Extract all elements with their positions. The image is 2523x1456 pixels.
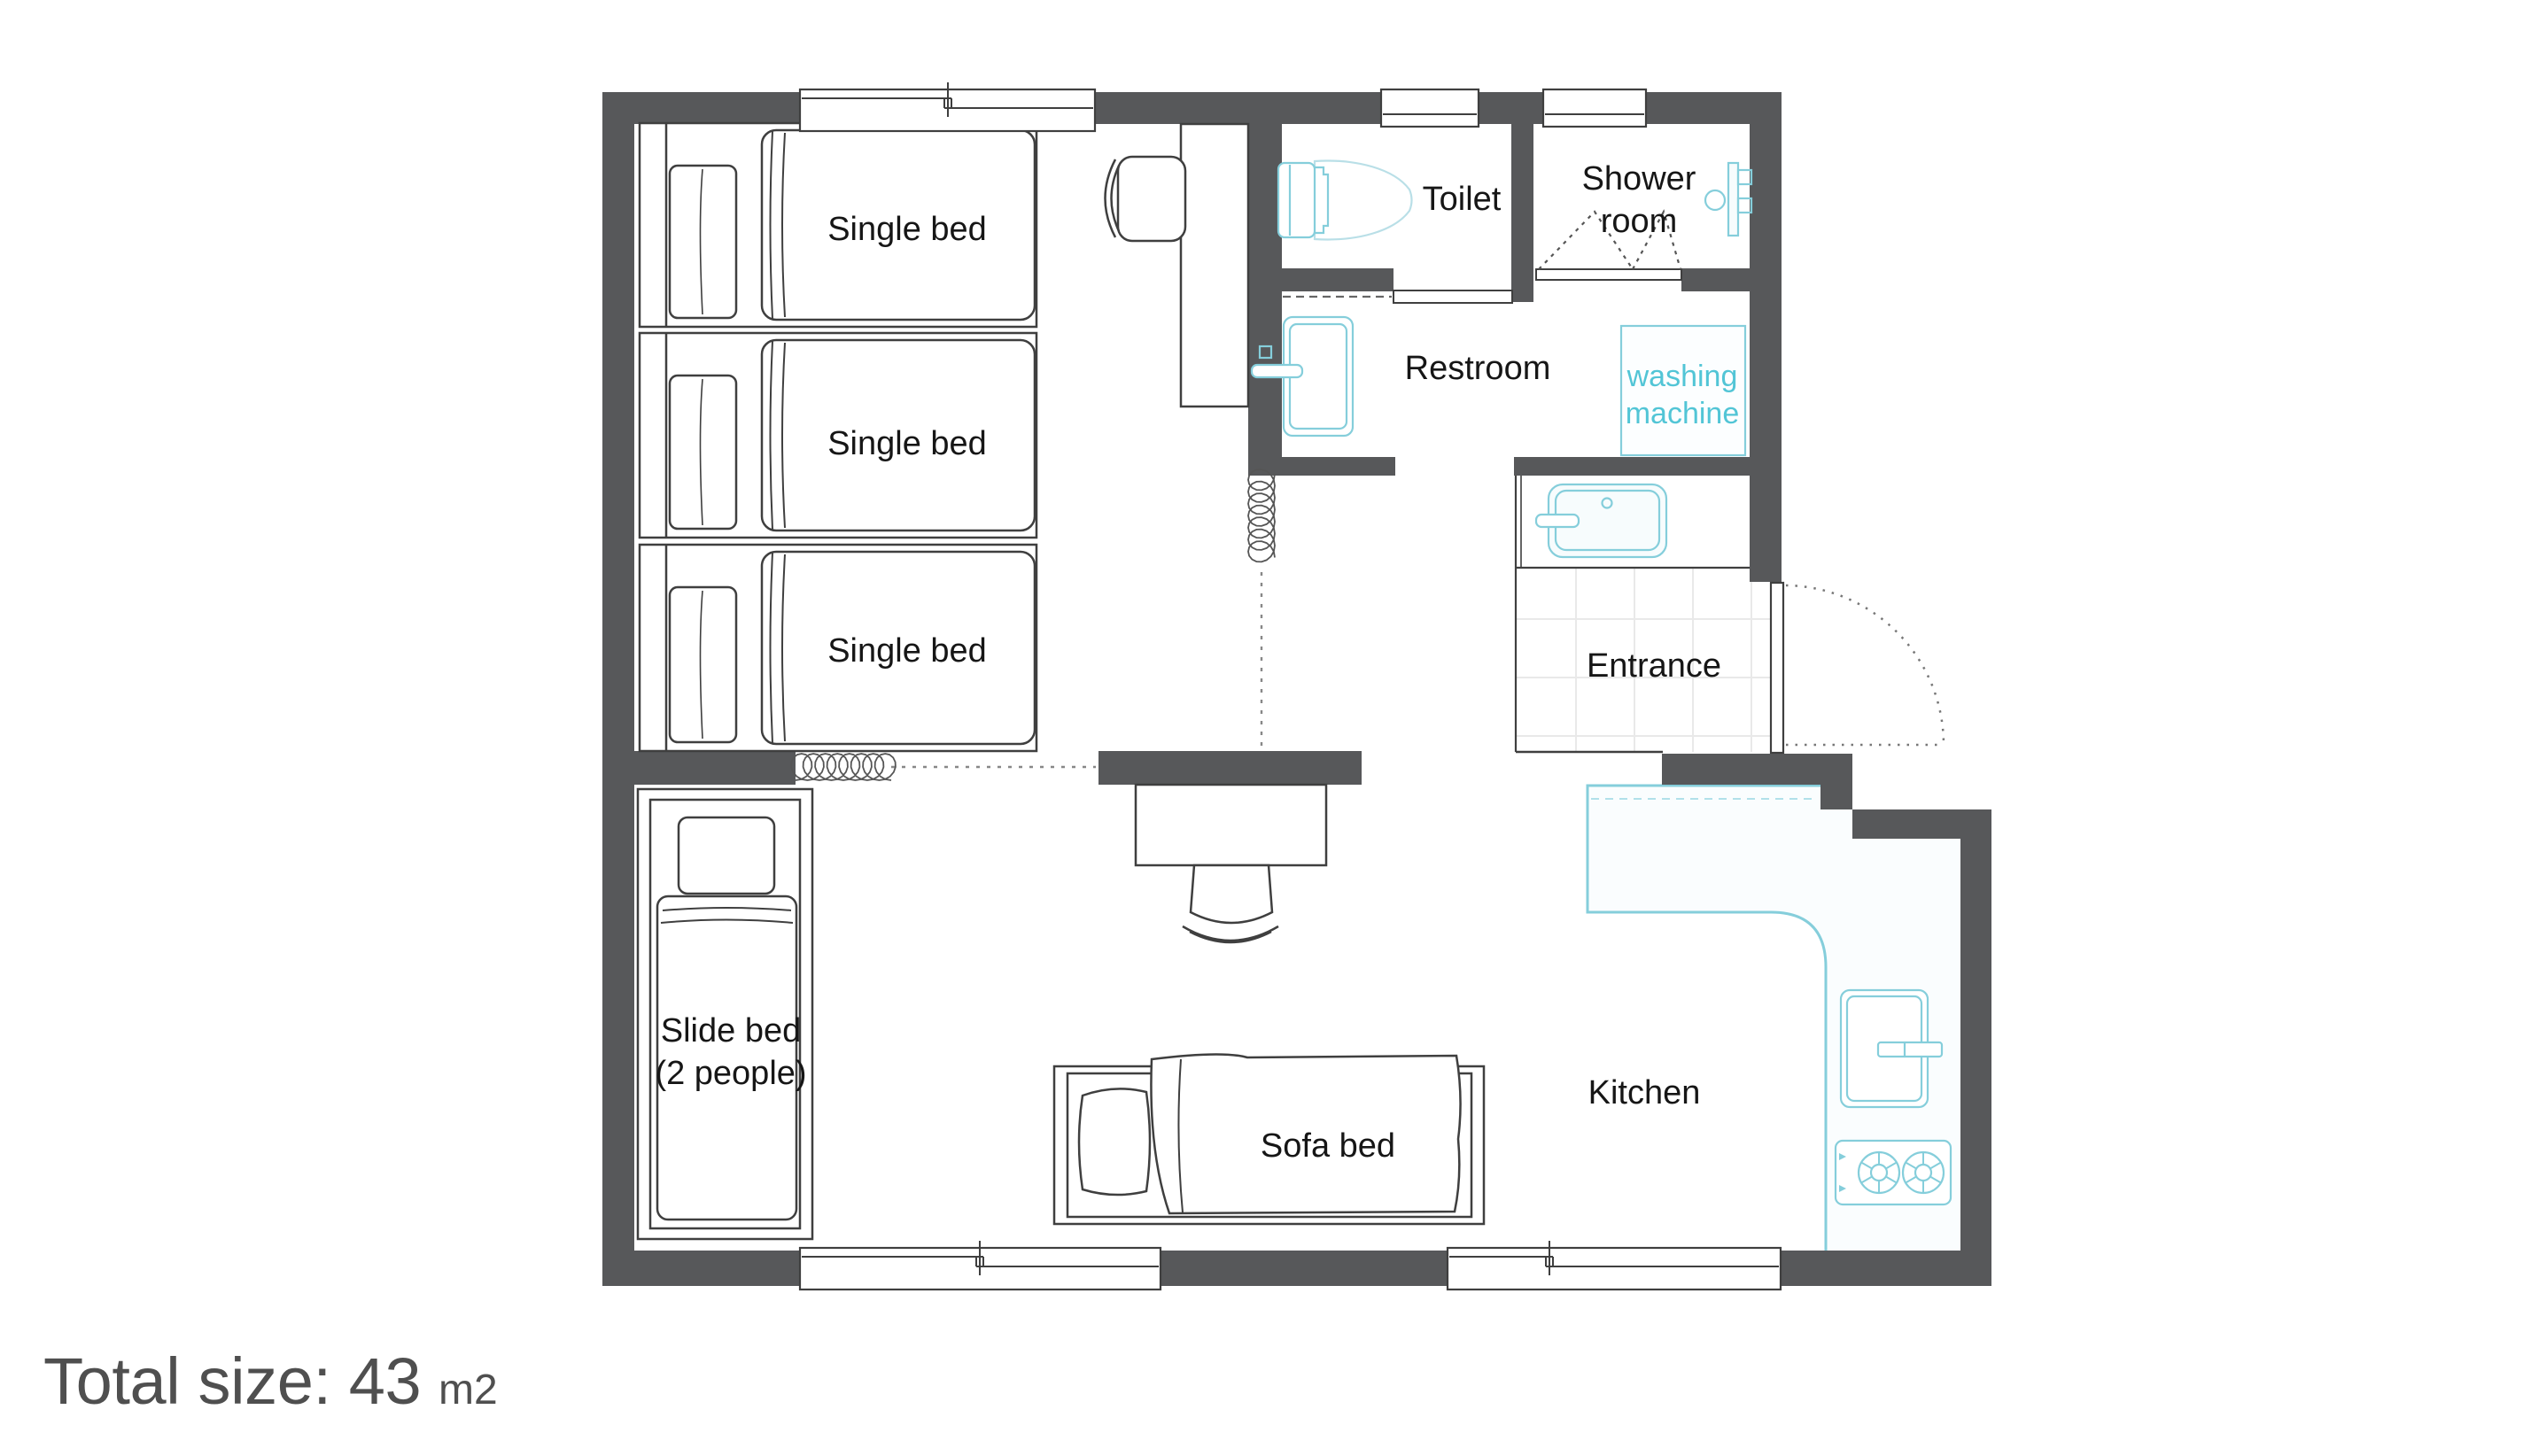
svg-text:Single bed: Single bed <box>827 425 987 462</box>
svg-text:Shower: Shower <box>1582 160 1696 197</box>
svg-text:Toilet: Toilet <box>1423 181 1502 218</box>
svg-text:Total size: 43: Total size: 43 <box>43 1344 421 1418</box>
svg-text:Single bed: Single bed <box>827 632 987 670</box>
svg-text:Kitchen: Kitchen <box>1588 1074 1701 1111</box>
svg-text:Entrance: Entrance <box>1587 647 1721 685</box>
svg-text:washing: washing <box>1626 360 1738 393</box>
svg-text:Single bed: Single bed <box>827 211 987 248</box>
svg-text:(2 people): (2 people) <box>655 1055 806 1092</box>
svg-text:Slide bed: Slide bed <box>661 1012 801 1049</box>
svg-text:Sofa bed: Sofa bed <box>1261 1127 1395 1165</box>
svg-text:machine: machine <box>1626 397 1740 430</box>
svg-text:m2: m2 <box>439 1367 498 1413</box>
svg-text:room: room <box>1601 203 1678 240</box>
svg-text:Restroom: Restroom <box>1405 350 1551 387</box>
